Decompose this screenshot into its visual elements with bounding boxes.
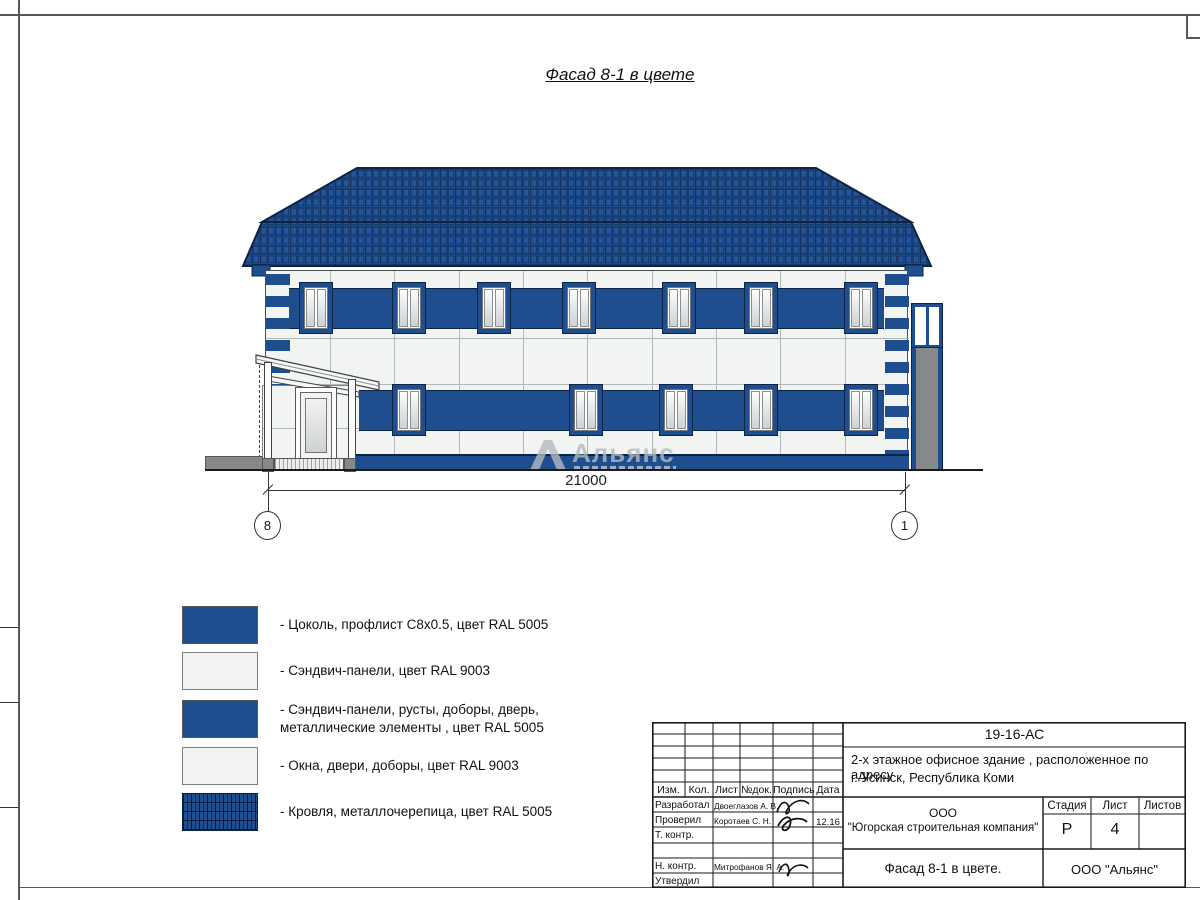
window-pane — [410, 391, 419, 429]
object-description-line2: г. Усинск, Республика Коми — [851, 770, 1183, 785]
row-name: Двоеглазов А. В. — [714, 801, 774, 811]
window-sash — [567, 287, 591, 329]
ground-line — [205, 469, 983, 471]
drawing-title: Фасад 8-1 в цвете — [470, 65, 770, 85]
fold-mark — [0, 702, 18, 703]
chimney-louver — [912, 304, 942, 348]
legend-label: - Кровля, металлочерепица, цвет RAL 5005 — [280, 803, 570, 821]
window-pane — [399, 391, 408, 429]
window-pane — [666, 391, 675, 429]
row-role: Т. контр. — [655, 830, 713, 841]
stage-value: Р — [1043, 821, 1091, 839]
legend-label: - Сэндвич-панели, русты, доборы, дверь, — [280, 701, 570, 719]
legend-label: - Сэндвич-панели, цвет RAL 9003 — [280, 662, 570, 680]
legend-item: - Окна, двери, доборы, цвет RAL 9003 — [182, 747, 570, 785]
row-role: Проверил — [655, 815, 713, 826]
frame-left — [18, 0, 20, 900]
window-pane — [587, 391, 596, 429]
chimney-louver-mullion — [926, 307, 929, 345]
window — [744, 282, 778, 334]
window — [844, 282, 878, 334]
window — [392, 384, 426, 436]
window-pane — [669, 289, 678, 327]
roof — [230, 150, 945, 290]
window-sash — [667, 287, 691, 329]
window-pane — [677, 391, 686, 429]
axis-bubble-1: 1 — [891, 511, 918, 540]
legend-swatch-white — [182, 747, 258, 785]
window — [569, 384, 603, 436]
window-pane — [751, 289, 760, 327]
window — [477, 282, 511, 334]
lower-window-band — [359, 390, 884, 431]
col-header-list: Лист — [713, 784, 740, 796]
stage-label: Стадия — [1043, 800, 1091, 812]
window — [844, 384, 878, 436]
chimney — [912, 304, 942, 470]
col-header-ndok: №док. — [740, 784, 773, 796]
sheet-value: 4 — [1091, 821, 1139, 839]
window-sash — [304, 287, 328, 329]
dimension-label: 21000 — [536, 472, 636, 489]
axis-bubble-8: 8 — [254, 511, 281, 540]
quoin-column-right — [885, 274, 909, 454]
legend-item: - Цоколь, профлист С8х0.5, цвет RAL 5005 — [182, 606, 570, 644]
row-date: 12.16 — [813, 817, 843, 828]
legend-swatch-roof — [182, 793, 258, 831]
window — [392, 282, 426, 334]
window-pane — [569, 289, 578, 327]
legend-swatch-blue — [182, 700, 258, 738]
entrance-porch — [255, 352, 385, 474]
row-name: Митрофанов Я. А. — [714, 862, 774, 872]
window — [562, 282, 596, 334]
legend-label: - Цоколь, профлист С8х0.5, цвет RAL 5005 — [280, 616, 570, 634]
window — [662, 282, 696, 334]
window — [659, 384, 693, 436]
signature — [778, 817, 807, 830]
title-block: 19-16-АС 2-х этажное офисное здание , ра… — [652, 722, 1186, 888]
extension-line-right — [905, 472, 906, 512]
sheet-label: Лист — [1091, 800, 1139, 812]
col-header-izm: Изм. — [652, 784, 685, 796]
window-pane — [851, 391, 860, 429]
window-pane — [580, 289, 589, 327]
window-pane — [306, 289, 315, 327]
row-role: Н. контр. — [655, 861, 713, 872]
window-sash — [482, 287, 506, 329]
window — [744, 384, 778, 436]
legend-item: - Сэндвич-панели, цвет RAL 9003 — [182, 652, 570, 690]
dimension-line — [268, 490, 905, 491]
window-pane — [762, 289, 771, 327]
row-role: Утвердил — [655, 876, 713, 887]
window-sash — [849, 389, 873, 431]
sheet-title: Фасад 8-1 в цвете. — [845, 861, 1041, 876]
row-role: Разработал — [655, 800, 713, 811]
window-pane — [576, 391, 585, 429]
extension-line-left — [268, 472, 269, 512]
window-pane — [484, 289, 493, 327]
organization: ООО "Альянс" — [1043, 862, 1186, 877]
col-header-podpis: Подпись — [773, 784, 813, 796]
roof-upper-slope — [262, 168, 911, 222]
window-pane — [862, 289, 871, 327]
legend-swatch-blue — [182, 606, 258, 644]
window-sash — [749, 287, 773, 329]
window-sash — [397, 287, 421, 329]
watermark-text: Альянс — [572, 438, 675, 469]
window-pane — [410, 289, 419, 327]
window-sash — [664, 389, 688, 431]
chimney-shaft — [912, 348, 942, 470]
fold-mark — [0, 807, 18, 808]
document-code: 19-16-АС — [843, 726, 1186, 742]
legend-item: - Кровля, металлочерепица, цвет RAL 5005 — [182, 793, 570, 831]
window-sash — [749, 389, 773, 431]
window-pane — [680, 289, 689, 327]
col-header-data: Дата — [813, 784, 843, 796]
window-pane — [862, 391, 871, 429]
porch-post-right — [348, 379, 356, 463]
watermark-logo — [530, 440, 566, 470]
window — [299, 282, 333, 334]
roof-lower-slope — [243, 222, 931, 266]
door-glass — [305, 398, 327, 453]
entrance-door — [295, 387, 337, 462]
window-pane — [762, 391, 771, 429]
company-line1: ООО — [845, 806, 1041, 820]
fold-mark — [0, 627, 18, 628]
window-sash — [849, 287, 873, 329]
window-sash — [397, 389, 421, 431]
window-sash — [574, 389, 598, 431]
window-pane — [399, 289, 408, 327]
legend-item: - Сэндвич-панели, русты, доборы, дверь,м… — [182, 700, 570, 738]
window-pane — [751, 391, 760, 429]
frame-corner-box-h — [1186, 37, 1200, 39]
frame-top — [0, 14, 1200, 16]
sheets-label: Листов — [1139, 800, 1186, 812]
pavement — [205, 456, 263, 470]
company-line2: "Югорская строительная компания" — [845, 822, 1041, 834]
frame-corner-box-v — [1186, 15, 1188, 38]
drawing-sheet: Фасад 8-1 в цвете — [0, 0, 1200, 900]
legend-label-line2: металлические элементы , цвет RAL 5005 — [280, 719, 570, 737]
wall-panel-joint-h — [266, 338, 909, 339]
col-header-kol: Кол. — [685, 784, 713, 796]
legend-label: - Окна, двери, доборы, цвет RAL 9003 — [280, 757, 570, 775]
row-name: Коротаев С. Н. — [714, 816, 774, 826]
door-leaf — [300, 392, 332, 459]
window-pane — [851, 289, 860, 327]
legend-swatch-white — [182, 652, 258, 690]
window-pane — [495, 289, 504, 327]
porch-post-left — [264, 362, 272, 463]
window-pane — [317, 289, 326, 327]
